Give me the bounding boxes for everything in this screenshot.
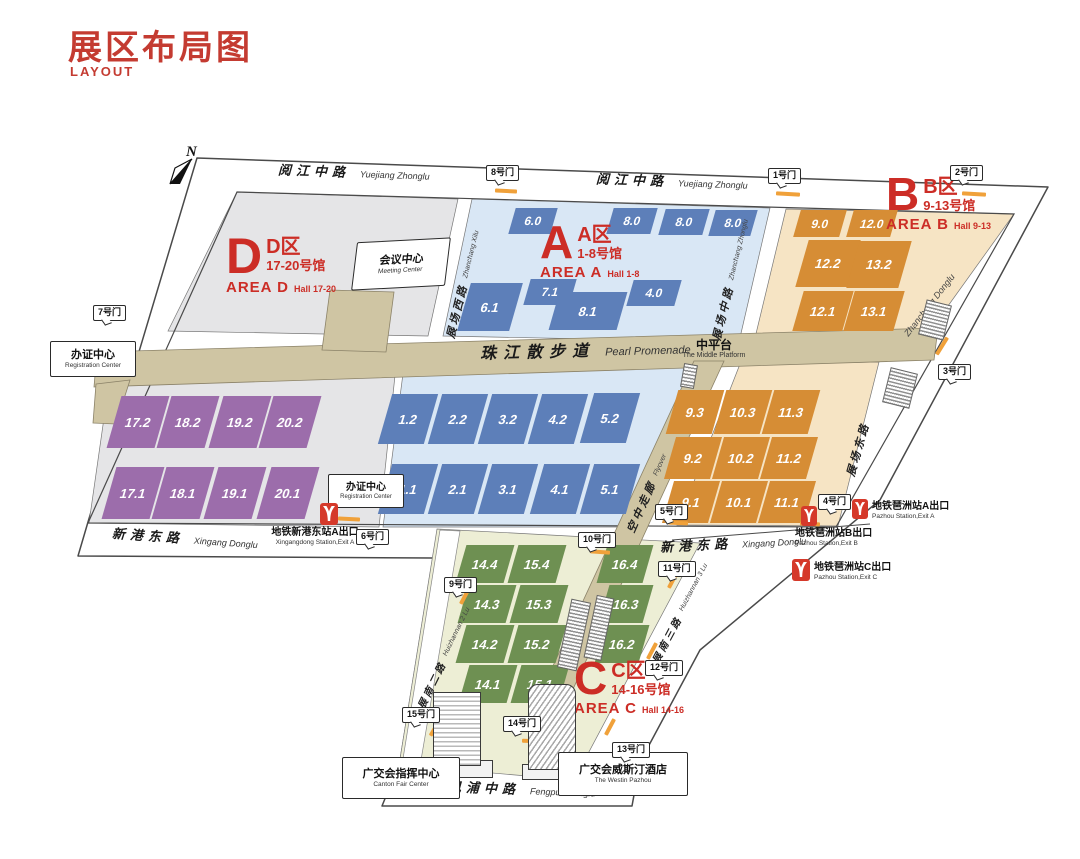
area-a-en: AREA A — [540, 264, 602, 281]
road-yuejiang-west-zh: 阅江中路 — [278, 159, 351, 181]
registration-center-west: 办证中心 Registration Center — [50, 341, 136, 377]
registration-west-zh: 办证中心 — [71, 348, 115, 362]
area-b-letter: B — [886, 176, 919, 214]
gate-11: 11号门 — [658, 561, 696, 577]
canton-fair-center-en: Canton Fair Center — [373, 781, 428, 789]
metro-logo — [854, 502, 866, 516]
gate-5: 5号门 — [655, 504, 688, 520]
canton-fair-center-label: 广交会指挥中心 Canton Fair Center — [342, 757, 460, 799]
road-yuejiang-west-en: Yuejiang Zhonglu — [360, 169, 430, 181]
area-a-letter: A — [540, 224, 573, 262]
area-d-zh: D区 — [266, 236, 325, 258]
meeting-center-stub — [322, 290, 394, 352]
area-b-halls-zh: 9-13号馆 — [923, 198, 975, 214]
metro-icon-pazhou-b — [801, 506, 817, 526]
gate-6: 6号门 — [356, 529, 389, 545]
area-d-halls-en: Hall 17-20 — [294, 284, 336, 294]
area-c-halls-zh: 14-16号馆 — [611, 682, 670, 698]
gate-9: 9号门 — [444, 577, 477, 593]
metro-pazhou-c-zh: 地铁琶洲站C出口 — [814, 561, 891, 574]
middle-platform-zh: 中平台 — [678, 338, 750, 352]
metro-pazhou-a-zh: 地铁琶洲站A出口 — [872, 500, 949, 513]
gate-15: 15号门 — [402, 707, 440, 723]
area-a-halls-en: Hall 1-8 — [607, 269, 639, 279]
area-c-halls-en: Hall 14-16 — [642, 705, 684, 715]
middle-platform-en: The Middle Platform — [678, 352, 750, 360]
gate-1: 1号门 — [768, 168, 801, 184]
metro-logo — [803, 509, 815, 523]
registration-center-mid: 办证中心 Registration Center — [328, 474, 404, 508]
area-c-en: AREA C — [574, 700, 637, 717]
area-d-en: AREA D — [226, 279, 289, 296]
hall-4.0: 4.0 — [626, 280, 681, 306]
promenade-zh: 珠江散步道 — [480, 337, 596, 364]
metro-logo — [794, 562, 808, 578]
hall-9.0: 9.0 — [793, 210, 847, 237]
area-a-halls-zh: 1-8号馆 — [577, 246, 622, 262]
area-b-en: AREA B — [886, 216, 949, 233]
area-a-zh: A区 — [577, 224, 622, 246]
road-yuejiang-east-zh: 阅江中路 — [596, 168, 669, 190]
gate-8: 8号门 — [486, 165, 519, 181]
meeting-center-en: Meeting Center — [377, 266, 422, 276]
metro-pazhou-c-en: Pazhou Station,Exit C — [814, 574, 891, 582]
metro-pazhou-b-label: 地铁琶洲站B出口 Pazhou Station,Exit B — [795, 527, 872, 548]
north-arrow-icon — [166, 154, 196, 188]
canton-fair-center-zh: 广交会指挥中心 — [363, 767, 440, 781]
metro-pazhou-b-en: Pazhou Station,Exit B — [795, 540, 872, 548]
road-xingang-east-zh: 新港东路 — [660, 533, 733, 556]
metro-logo — [322, 506, 336, 522]
area-d-halls-zh: 17-20号馆 — [266, 258, 325, 274]
gate-7: 7号门 — [93, 305, 126, 321]
road-xingang-west-en: Xingang Donglu — [193, 536, 258, 550]
gate-10: 10号门 — [578, 532, 616, 548]
gate-14: 14号门 — [503, 716, 541, 732]
area-b-halls-en: Hall 9-13 — [954, 221, 991, 231]
gate-12: 12号门 — [645, 660, 683, 676]
westin-en: The Westin Pazhou — [595, 777, 652, 785]
canton-fair-center-tower — [433, 692, 481, 766]
road-yuejiang-east-en: Yuejiang Zhonglu — [678, 178, 748, 190]
metro-pazhou-c-label: 地铁琶洲站C出口 Pazhou Station,Exit C — [814, 561, 891, 582]
hall-8.0-b: 8.0 — [658, 209, 709, 235]
area-c-letter: C — [574, 660, 607, 698]
meeting-center: 会议中心 Meeting Center — [351, 237, 451, 290]
gate-2: 2号门 — [950, 165, 983, 181]
area-b-label: B B区 9-13号馆 AREA B Hall 9-13 — [886, 176, 991, 233]
area-d-letter: D — [226, 236, 262, 277]
registration-mid-zh: 办证中心 — [346, 481, 386, 494]
gate-4: 4号门 — [818, 494, 851, 510]
middle-platform-label: 中平台 The Middle Platform — [678, 338, 750, 361]
area-a-label: A A区 1-8号馆 AREA A Hall 1-8 — [540, 224, 639, 281]
registration-mid-en: Registration Center — [340, 494, 392, 501]
westin-zh: 广交会威斯汀酒店 — [579, 763, 667, 777]
gate-3: 3号门 — [938, 364, 971, 380]
metro-pazhou-a-en: Pazhou Station,Exit A — [872, 513, 949, 521]
hall-8.1: 8.1 — [549, 292, 628, 330]
area-d-label: D D区 17-20号馆 AREA D Hall 17-20 — [226, 236, 336, 296]
gate-13: 13号门 — [612, 742, 650, 758]
metro-pazhou-b-zh: 地铁琶洲站B出口 — [795, 527, 872, 540]
metro-icon-xingangdong-a — [320, 503, 338, 525]
registration-west-en: Registration Center — [65, 362, 121, 370]
metro-icon-pazhou-a — [852, 499, 868, 519]
metro-pazhou-a-label: 地铁琶洲站A出口 Pazhou Station,Exit A — [872, 500, 949, 521]
metro-icon-pazhou-c — [792, 559, 810, 581]
